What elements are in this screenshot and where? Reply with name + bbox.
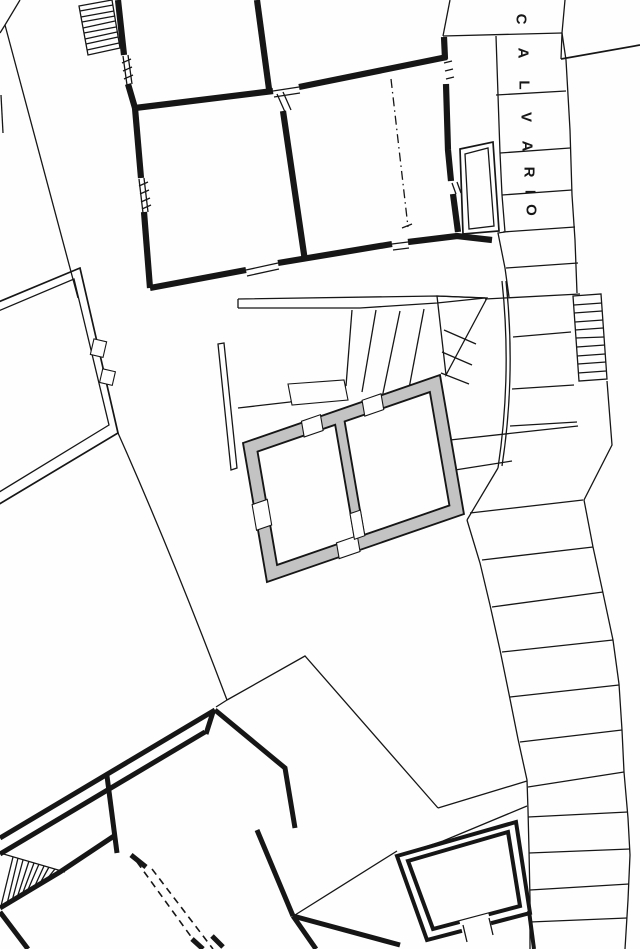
door-opening xyxy=(252,499,272,530)
door-jamb xyxy=(246,263,279,276)
street-step xyxy=(482,547,593,560)
wall-interior xyxy=(299,57,447,87)
terrain-boundary-lines xyxy=(0,0,640,915)
plaza-edge-lines xyxy=(227,656,438,808)
street-calvario-upper: CALVARIO xyxy=(443,14,580,299)
street-step xyxy=(485,294,580,299)
dashed-passage-line xyxy=(152,869,213,949)
street-step xyxy=(520,730,622,742)
door-opening xyxy=(90,339,106,358)
street-letter: R xyxy=(521,167,538,178)
street-letter: L xyxy=(516,80,533,89)
door-opening xyxy=(350,510,365,539)
stair-landing-triangle xyxy=(437,296,487,375)
boundary-corner-topleft xyxy=(0,0,20,33)
door-jamb xyxy=(392,242,409,250)
wall xyxy=(135,108,141,178)
wall xyxy=(144,212,150,288)
street-stepped-lower xyxy=(450,381,630,949)
highlighted-building xyxy=(241,374,464,584)
stair-riser xyxy=(441,373,469,384)
stair-hatched-right xyxy=(573,294,607,381)
boundary-tail xyxy=(216,700,227,707)
street-step xyxy=(496,91,566,95)
boundary-line-lower xyxy=(118,433,227,700)
street-left-edge-lower xyxy=(467,520,530,949)
wall xyxy=(118,0,124,55)
street-letter: I xyxy=(522,190,539,194)
bottom-center-building xyxy=(397,822,534,949)
plan-page: CALVARIO xyxy=(0,0,640,949)
street-letter: V xyxy=(518,112,535,122)
street-step xyxy=(450,426,578,440)
wall xyxy=(0,912,28,949)
door-opening xyxy=(100,369,116,386)
stair-riser xyxy=(510,422,577,426)
section-tick xyxy=(402,224,412,228)
wall xyxy=(128,84,135,108)
path-band-top xyxy=(438,781,527,808)
bottom-left-building xyxy=(0,710,400,949)
street-step xyxy=(530,884,629,890)
door-jamb-wall xyxy=(212,936,223,947)
street-step xyxy=(528,812,628,817)
door-hatch xyxy=(122,59,133,79)
street-step xyxy=(506,263,578,268)
street-step xyxy=(470,500,583,513)
boundary-line-upper xyxy=(5,25,78,298)
wall xyxy=(408,236,492,242)
street-right-edge-upper xyxy=(562,33,577,293)
wall xyxy=(453,194,458,232)
street-letter: O xyxy=(523,204,540,216)
door-hatch xyxy=(444,61,454,79)
stair-riser xyxy=(512,385,574,389)
street-step xyxy=(455,461,512,470)
dashed-passage-line xyxy=(137,862,200,949)
street-label-calvario: CALVARIO xyxy=(513,14,540,217)
street-step xyxy=(530,918,627,922)
wall xyxy=(0,732,205,854)
street-step xyxy=(528,772,624,787)
wall xyxy=(257,830,293,916)
street-left-edge-upper xyxy=(496,36,509,297)
wall xyxy=(446,84,451,181)
street-letter: C xyxy=(513,14,530,25)
section-dashdot-line xyxy=(391,79,408,227)
left-building xyxy=(0,268,118,506)
wall xyxy=(150,270,246,288)
street-letter: A xyxy=(519,141,536,152)
street-letter: A xyxy=(515,48,532,59)
stair-treads xyxy=(1,857,60,906)
wall xyxy=(0,710,215,838)
wall-interior xyxy=(283,111,305,261)
spur-wall xyxy=(218,343,237,470)
street-step xyxy=(503,227,575,232)
wall-interior xyxy=(257,0,269,89)
door-opening xyxy=(362,394,384,416)
street-step xyxy=(502,640,613,652)
street-right-edge-lower xyxy=(584,381,630,949)
stair-riser xyxy=(382,311,400,398)
stair-riser xyxy=(513,332,571,337)
street-step xyxy=(443,33,562,36)
left-building-inner xyxy=(0,279,109,494)
terrain-line-bottom xyxy=(295,851,397,915)
street-step xyxy=(529,849,630,853)
street-step xyxy=(492,592,603,607)
boundary-topright xyxy=(561,45,640,59)
wall-interior xyxy=(135,91,273,108)
terrace-band-bottom xyxy=(238,298,485,308)
stair-treads xyxy=(574,303,606,373)
annex-inner xyxy=(465,148,494,229)
stair-riser xyxy=(444,330,476,344)
stair-step-over-wall xyxy=(288,380,348,405)
site-plan-drawing: CALVARIO xyxy=(0,0,640,949)
wall xyxy=(278,244,392,263)
edge-mark xyxy=(1,95,3,133)
building-corner-line xyxy=(443,0,450,36)
top-building xyxy=(118,0,499,288)
stair-hatched-topleft xyxy=(79,0,120,55)
stair-riser xyxy=(346,310,352,386)
door-opening xyxy=(301,415,323,437)
stair-riser xyxy=(362,310,376,392)
door-jamb xyxy=(452,182,461,194)
wall xyxy=(215,710,295,828)
street-step xyxy=(510,685,619,697)
